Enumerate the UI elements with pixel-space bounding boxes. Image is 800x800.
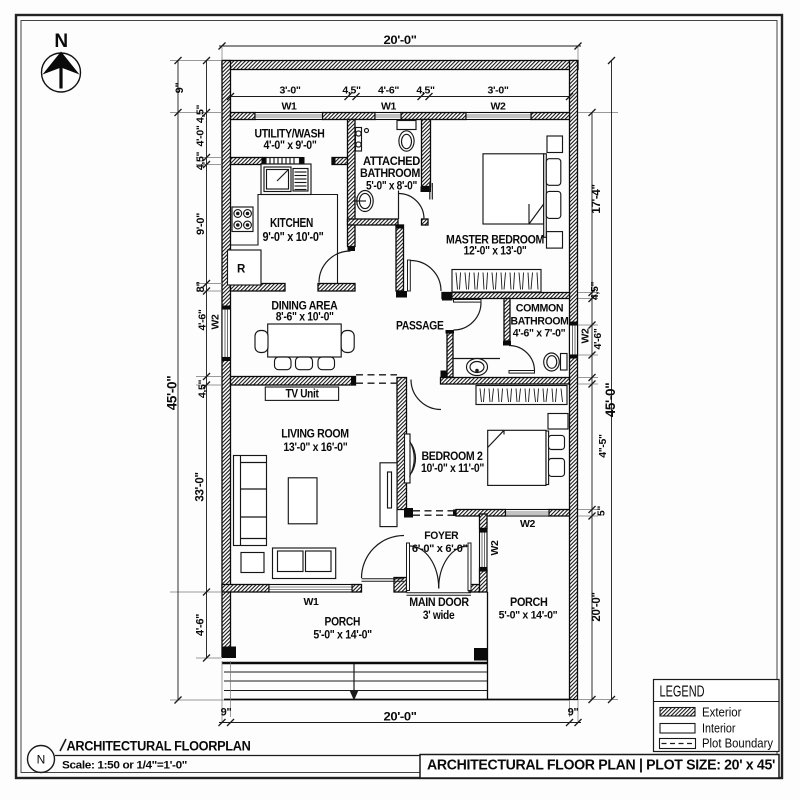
svg-text:4'-6" x 7'-0": 4'-6" x 7'-0" bbox=[513, 328, 566, 340]
svg-text:10'-0" x 11'-0": 10'-0" x 11'-0" bbox=[421, 463, 484, 475]
svg-text:ARCHITECTURAL FLOOR PLAN | PLO: ARCHITECTURAL FLOOR PLAN | PLOT SIZE: 20… bbox=[427, 758, 775, 774]
svg-text:Scale: 1:50 or 1/4"=1'-0": Scale: 1:50 or 1/4"=1'-0" bbox=[62, 760, 187, 772]
svg-text:Plot Boundary: Plot Boundary bbox=[702, 736, 773, 751]
svg-text:KITCHEN: KITCHEN bbox=[270, 215, 313, 230]
svg-text:DINING AREA: DINING AREA bbox=[271, 299, 338, 313]
svg-text:6'-0" x 6'-0": 6'-0" x 6'-0" bbox=[412, 543, 468, 555]
svg-text:4"-5": 4"-5" bbox=[597, 434, 609, 458]
svg-text:9": 9" bbox=[221, 707, 232, 719]
svg-text:17'-4": 17'-4" bbox=[591, 184, 603, 213]
svg-text:W2: W2 bbox=[210, 314, 222, 330]
svg-text:4'-6": 4'-6" bbox=[197, 309, 209, 330]
svg-text:N: N bbox=[37, 753, 46, 767]
svg-text:5'-0" x 8'-0": 5'-0" x 8'-0" bbox=[366, 181, 417, 193]
svg-text:4'-6": 4'-6" bbox=[195, 614, 207, 636]
svg-text:3'-0": 3'-0" bbox=[280, 85, 301, 97]
svg-text:12'-0" x 13'-0": 12'-0" x 13'-0" bbox=[464, 246, 527, 258]
svg-text:5'-0" x 14'-0": 5'-0" x 14'-0" bbox=[313, 630, 372, 642]
svg-text:3' wide: 3' wide bbox=[423, 608, 455, 622]
svg-text:PORCH: PORCH bbox=[325, 615, 361, 629]
svg-text:W2: W2 bbox=[520, 518, 536, 530]
svg-text:COMMON: COMMON bbox=[516, 303, 564, 315]
svg-text:9'-0" x 10'-0": 9'-0" x 10'-0" bbox=[263, 230, 324, 244]
svg-text:4'-0" x 9'-0": 4'-0" x 9'-0" bbox=[264, 140, 317, 152]
svg-text:W2: W2 bbox=[490, 101, 506, 113]
svg-text:MAIN DOOR: MAIN DOOR bbox=[409, 595, 469, 609]
svg-text:4'-0": 4'-0" bbox=[195, 125, 207, 146]
svg-text:4'-6": 4'-6" bbox=[592, 328, 604, 349]
svg-text:9": 9" bbox=[174, 83, 186, 94]
svg-text:PORCH: PORCH bbox=[510, 597, 548, 609]
svg-text:W1: W1 bbox=[281, 101, 297, 113]
svg-text:FOYER: FOYER bbox=[424, 530, 458, 542]
svg-text:R: R bbox=[237, 264, 246, 276]
svg-text:PASSAGE: PASSAGE bbox=[396, 319, 444, 333]
svg-text:W2: W2 bbox=[489, 540, 501, 556]
svg-text:8": 8" bbox=[195, 282, 207, 293]
svg-text:TV Unit: TV Unit bbox=[286, 389, 319, 401]
svg-text:BATHROOM: BATHROOM bbox=[360, 166, 420, 180]
svg-text:BATHROOM: BATHROOM bbox=[511, 316, 569, 328]
svg-text:N: N bbox=[54, 31, 67, 52]
svg-text:33'-0": 33'-0" bbox=[195, 472, 207, 501]
svg-text:5'-0" x 14'-0": 5'-0" x 14'-0" bbox=[499, 610, 558, 622]
svg-text:W1: W1 bbox=[381, 101, 397, 113]
svg-text:20'-0": 20'-0" bbox=[384, 710, 417, 724]
svg-text:Exterior: Exterior bbox=[702, 705, 742, 720]
svg-text:4,5": 4,5" bbox=[195, 105, 207, 124]
svg-text:20'-0": 20'-0" bbox=[384, 33, 417, 47]
svg-text:W1: W1 bbox=[303, 596, 319, 608]
svg-text:45'-0": 45'-0" bbox=[603, 383, 618, 418]
svg-text:4,5": 4,5" bbox=[589, 282, 601, 301]
svg-text:LEGEND: LEGEND bbox=[660, 684, 705, 701]
svg-text:UTILITY/WASH: UTILITY/WASH bbox=[255, 129, 325, 141]
svg-text:45'-0": 45'-0" bbox=[165, 376, 180, 411]
svg-text:4'-6": 4'-6" bbox=[378, 85, 399, 97]
svg-text:13'-0" x 16'-0": 13'-0" x 16'-0" bbox=[283, 442, 347, 454]
svg-text:5": 5" bbox=[596, 506, 608, 516]
svg-text:4,5": 4,5" bbox=[416, 85, 435, 97]
svg-text:BEDROOM 2: BEDROOM 2 bbox=[422, 451, 483, 463]
svg-text:3'-0": 3'-0" bbox=[488, 85, 509, 97]
svg-text:LIVING ROOM: LIVING ROOM bbox=[281, 429, 349, 441]
svg-text:20'-0": 20'-0" bbox=[591, 592, 603, 621]
svg-text:4,5": 4,5" bbox=[197, 380, 209, 399]
svg-text:4,5": 4,5" bbox=[195, 152, 207, 171]
svg-text:Interior: Interior bbox=[702, 721, 736, 736]
svg-text:W2: W2 bbox=[580, 328, 592, 344]
svg-text:ARCHITECTURAL FLOORPLAN: ARCHITECTURAL FLOORPLAN bbox=[67, 739, 251, 754]
svg-text:9'-0": 9'-0" bbox=[195, 213, 207, 235]
svg-text:9": 9" bbox=[568, 707, 579, 719]
svg-text:4,5": 4,5" bbox=[342, 85, 361, 97]
svg-text:8'-6" x 10'-0": 8'-6" x 10'-0" bbox=[276, 312, 334, 324]
